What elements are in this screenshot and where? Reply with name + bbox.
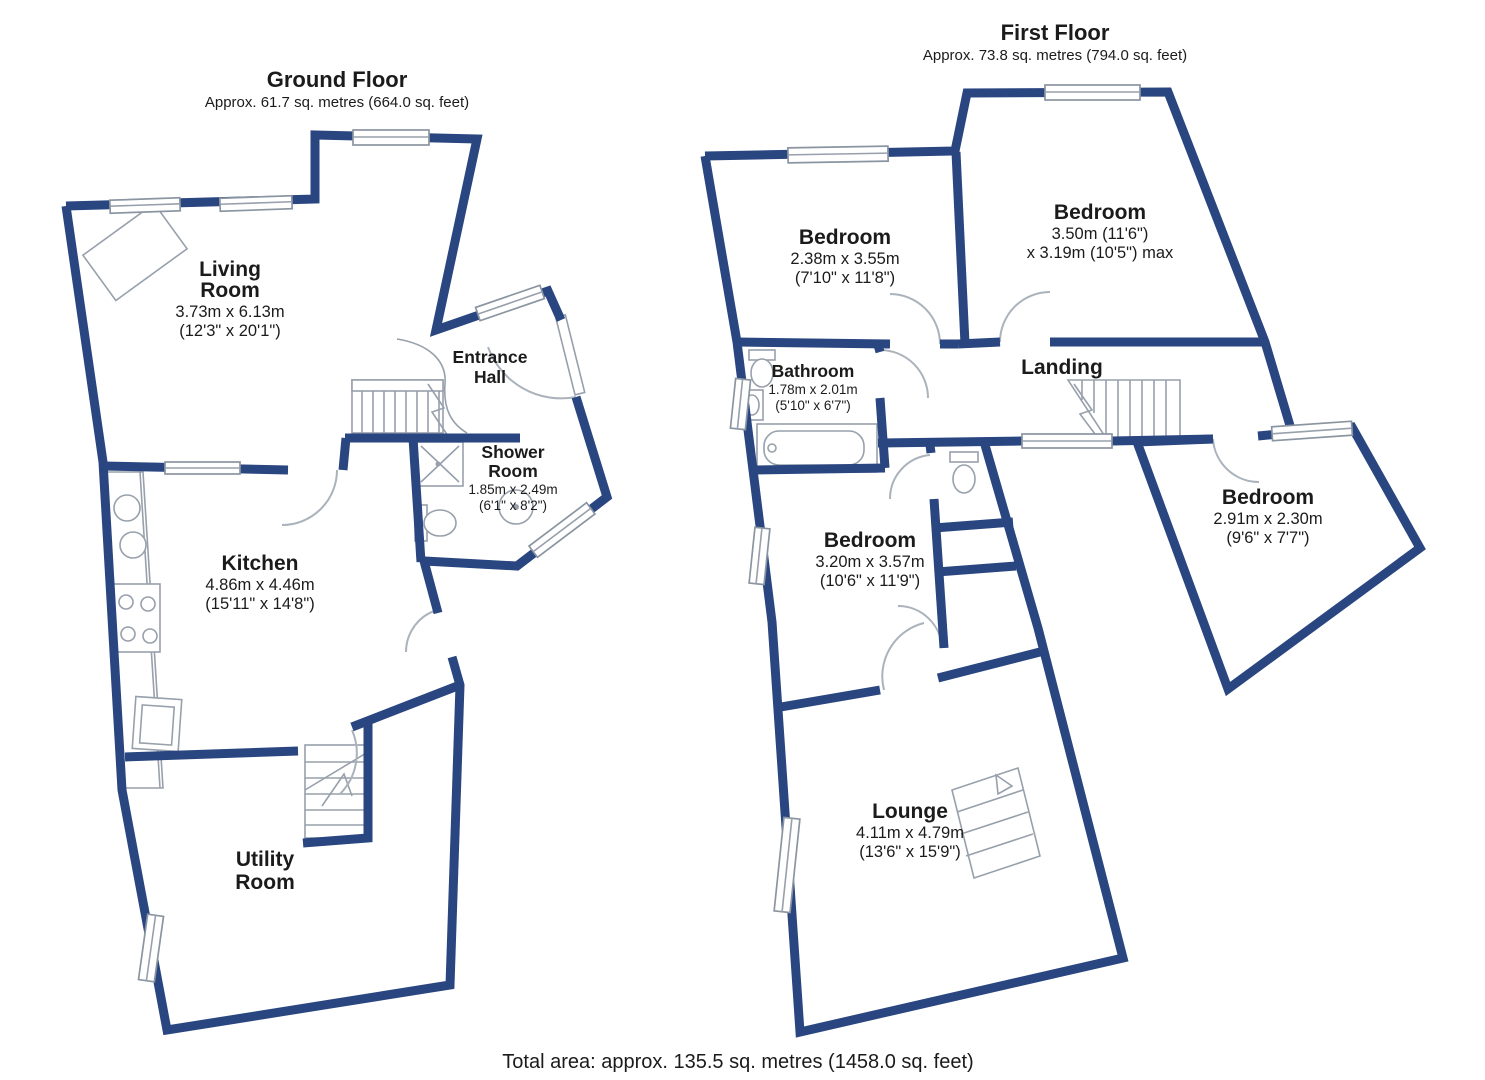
living-room-dims-imperial: (12'3" x 20'1") [179,322,280,340]
kitchen-sink-unit [132,696,182,751]
lounge-label: Lounge [872,800,948,823]
ground-floor-title: Ground Floor [267,67,408,92]
utility-room-label: Utility [236,848,295,871]
living-room-label: Living [199,258,261,281]
living-room-dims-metric: 3.73m x 6.13m [175,303,284,321]
ground-floor-subtitle: Approx. 61.7 sq. metres (664.0 sq. feet) [205,94,469,111]
first-floor-plan: First Floor Approx. 73.8 sq. metres (794… [705,20,1420,1032]
shower-room-label: Shower [481,442,544,462]
svg-text:Hall: Hall [474,367,506,387]
shower-room-dims-metric: 1.85m x 2.49m [468,482,557,497]
lounge-stair-bulkhead [952,768,1040,878]
bedroom3-dims-imperial: (10'6" x 11'9") [820,572,920,590]
bedroom4-dims-imperial: (9'6" x 7'7") [1226,529,1309,547]
bedroom4-dims-metric: 2.91m x 2.30m [1213,510,1322,528]
kitchen-dims-imperial: (15'11" x 14'8") [205,595,314,613]
lounge-dims-imperial: (13'6" x 15'9") [859,843,960,861]
first-floor-title: First Floor [1001,20,1110,45]
bedroom1-dims-metric: 2.38m x 3.55m [790,250,899,268]
total-area-text: Total area: approx. 135.5 sq. metres (14… [502,1051,973,1073]
bedroom1-label: Bedroom [799,226,891,249]
wc-toilet [950,452,978,462]
ground-floor-windows [110,130,595,982]
lounge-dims-metric: 4.11m x 4.79m [856,824,964,842]
bedroom3-label: Bedroom [824,529,916,552]
floorplan-page: Ground Floor Approx. 61.7 sq. metres (66… [0,0,1485,1080]
entrance-hall-label: Entrance [453,347,528,367]
landing-stairs [1068,380,1180,438]
bathroom-dims-metric: 1.78m x 2.01m [768,382,857,397]
first-floor-subtitle: Approx. 73.8 sq. metres (794.0 sq. feet) [923,47,1187,64]
svg-text:Room: Room [488,461,538,481]
front-door-leaf [556,315,585,395]
svg-text:Room: Room [235,871,295,894]
bedroom4-label: Bedroom [1222,486,1314,509]
bathroom-dims-imperial: (5'10" x 6'7") [775,398,851,413]
bedroom2-label: Bedroom [1054,201,1146,224]
bedroom2-dims-imperial: x 3.19m (10'5") max [1027,244,1174,262]
ground-floor-stairs [352,380,448,436]
ground-floor-lower-stairs [305,745,368,838]
bedroom2-dims-metric: 3.50m (11'6") [1052,225,1149,243]
kitchen-label: Kitchen [221,552,298,575]
bedroom3-dims-metric: 3.20m x 3.57m [815,553,924,571]
ground-floor-plan: Ground Floor Approx. 61.7 sq. metres (66… [66,67,607,1030]
kitchen-dims-metric: 4.86m x 4.46m [205,576,314,594]
bedroom1-dims-imperial: (7'10" x 11'8") [795,269,895,287]
floorplan-svg: Ground Floor Approx. 61.7 sq. metres (66… [0,0,1485,1080]
shower-room-dims-imperial: (6'1" x 8'2") [479,498,547,513]
bathroom-label: Bathroom [772,361,855,381]
kitchen-sink-bowl [114,495,140,521]
svg-text:Room: Room [200,279,260,302]
landing-label: Landing [1021,356,1103,379]
living-room-furniture [83,203,187,300]
